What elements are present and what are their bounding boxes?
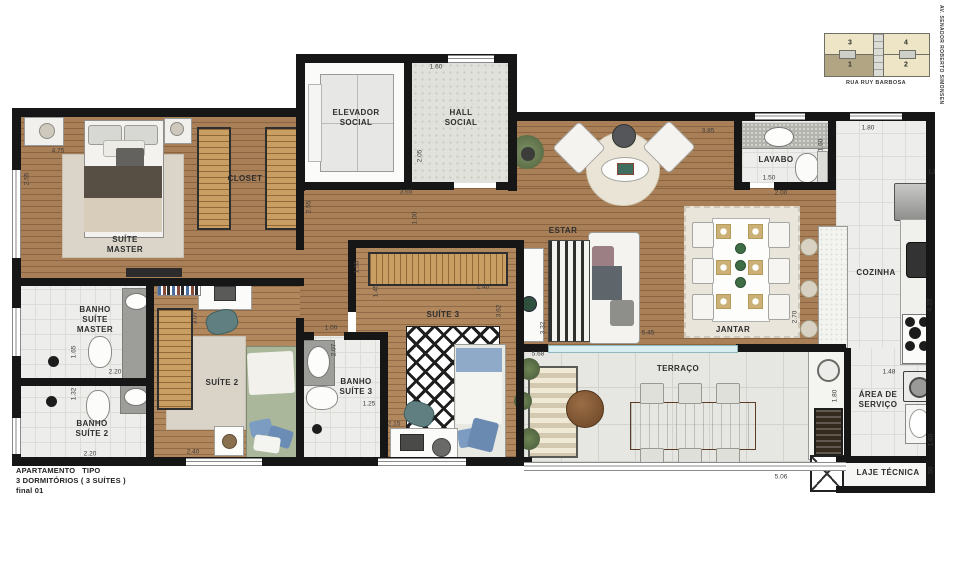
- island-stool: [800, 320, 818, 338]
- key-plan-unit4-number: 4: [904, 40, 908, 47]
- room-label-laje-t-cnica: LAJE TÉCNICA: [856, 468, 919, 478]
- key-plan-core: [873, 33, 884, 77]
- dimension-label: 1.60: [928, 434, 935, 447]
- terrace-railing: [524, 462, 846, 471]
- place-setting: [748, 260, 763, 275]
- wall-segment: [380, 332, 388, 458]
- wall-segment: [146, 286, 154, 458]
- room-label-terra-o: TERRAÇO: [657, 364, 699, 374]
- window: [850, 113, 902, 120]
- toilet: [88, 336, 112, 368]
- wall-segment: [296, 190, 304, 250]
- jantar-plant: [735, 277, 746, 288]
- room-label-closet: CLOSET: [228, 174, 263, 184]
- dimension-label: 5.68: [532, 351, 545, 358]
- dimension-label: 1.25: [363, 401, 376, 408]
- dimension-label: 2.15: [388, 421, 401, 428]
- jantar-plant: [735, 243, 746, 254]
- wall-segment: [296, 54, 305, 191]
- suite2-wardrobe: [157, 308, 193, 410]
- room-label-su-te-2: SUÍTE 2: [205, 378, 238, 388]
- dimension-label: 1.00: [325, 325, 338, 332]
- gourmet-sink: [817, 359, 840, 382]
- room-label-banho-su-te-master: BANHO SUÍTE MASTER: [77, 305, 113, 335]
- dimension-label: 5.06: [775, 474, 788, 481]
- pillow: [253, 434, 281, 453]
- window: [755, 113, 805, 120]
- suite2-blanket: [247, 351, 295, 395]
- wall-segment: [828, 112, 836, 190]
- toilet: [306, 386, 338, 410]
- shower-drain: [48, 356, 59, 367]
- dimension-label: .50: [928, 466, 935, 475]
- room-label-elevador-social: ELEVADOR SOCIAL: [332, 108, 379, 128]
- kitchen-island: [818, 226, 848, 348]
- wall-segment: [348, 246, 356, 312]
- terrace-chair: [678, 383, 702, 404]
- dimension-label: 5.45: [642, 330, 655, 337]
- dimension-label: 1.48: [883, 369, 896, 376]
- bathroom-sink: [307, 346, 330, 378]
- burner: [909, 327, 921, 339]
- sofa-pillow: [610, 300, 634, 326]
- bathroom-sink: [124, 388, 148, 406]
- title-line-1: APARTAMENTO TIPO: [16, 466, 126, 476]
- burner: [905, 317, 915, 327]
- dimension-label: 1.60: [430, 64, 443, 71]
- jantar-plant: [735, 260, 746, 271]
- wall-segment: [836, 486, 931, 493]
- key-plan-unit1-number: 1: [848, 62, 852, 69]
- floor-plan: SUÍTE MASTERCLOSETELEVADOR SOCIALHALL SO…: [0, 0, 960, 576]
- room-label-estar: ESTAR: [549, 226, 578, 236]
- dimension-label: 2.00: [775, 190, 788, 197]
- shower-drain: [46, 396, 57, 407]
- elevator-shelf: [308, 84, 322, 162]
- window: [12, 418, 21, 454]
- dimension-label: 3.32: [540, 322, 547, 335]
- wall-segment: [508, 121, 517, 191]
- dimension-label: 2.20: [109, 369, 122, 376]
- window: [448, 55, 494, 63]
- shower-drain: [312, 424, 322, 434]
- place-setting: [716, 224, 731, 239]
- window: [186, 458, 262, 466]
- wall-segment: [736, 344, 846, 352]
- terrace-chair: [640, 383, 664, 404]
- estar-stripe-rug: [548, 240, 590, 342]
- place-setting: [748, 224, 763, 239]
- bathroom-sink: [125, 293, 148, 310]
- suite3-blanket-white: [456, 372, 502, 424]
- wall-segment: [734, 112, 742, 190]
- dimension-label: 1.45: [373, 285, 380, 298]
- key-plan-unit3-number: 3: [848, 40, 852, 47]
- room-label-cozinha: COZINHA: [856, 268, 895, 278]
- lamp: [39, 123, 55, 139]
- dimension-label: 1.55: [354, 261, 361, 274]
- toilet: [86, 390, 110, 422]
- dimension-label: 3.65: [400, 189, 413, 196]
- key-plan-window-left: [839, 50, 856, 59]
- suite3-wardrobe: [368, 252, 508, 286]
- dimension-label: 1.50: [763, 175, 776, 182]
- estar-tray: [617, 163, 634, 175]
- lavabo-toilet: [795, 153, 819, 183]
- room-label-hall-social: HALL SOCIAL: [445, 108, 478, 128]
- suite3-blanket-blue: [456, 348, 502, 374]
- wall-segment: [296, 182, 412, 190]
- terrace-dining-table: [630, 402, 756, 450]
- dimension-label: 2.05: [417, 150, 424, 163]
- room-label--rea-de-servi-o: ÁREA DE SERVIÇO: [859, 390, 898, 410]
- room-label-lavabo: LAVABO: [759, 155, 794, 165]
- dimension-label: 2.40: [187, 449, 200, 456]
- dimension-label: 1.80: [832, 390, 839, 403]
- dimension-label: 2.70: [792, 311, 799, 324]
- dimension-label: LJ: [929, 169, 936, 176]
- nightstand-decor: [222, 434, 237, 449]
- jantar-chair: [768, 258, 790, 284]
- dimension-label: 2.55: [24, 173, 31, 186]
- bed-blanket-light: [84, 198, 162, 232]
- dimension-label: 1.00: [412, 212, 419, 225]
- dimension-label: 3.07: [192, 312, 199, 325]
- lavabo-basin: [764, 127, 794, 147]
- key-plan-window-right: [899, 50, 916, 59]
- dimension-label: 2.07: [331, 344, 338, 357]
- window: [378, 458, 466, 466]
- room-label-banho-su-te-3: BANHO SUÍTE 3: [339, 377, 372, 397]
- dimension-label: 4.15: [927, 299, 934, 312]
- lamp: [170, 122, 184, 136]
- window: [12, 308, 21, 356]
- sofa-throw: [592, 266, 622, 300]
- wall-segment: [12, 108, 21, 465]
- wall-segment: [12, 108, 304, 117]
- place-setting: [748, 294, 763, 309]
- wall-segment: [404, 62, 412, 183]
- key-plan-unit2-number: 2: [904, 62, 908, 69]
- room-label-su-te-master: SUÍTE MASTER: [107, 235, 143, 255]
- dimension-label: 1.32: [71, 388, 78, 401]
- room-label-jantar: JANTAR: [716, 325, 750, 335]
- terrace-round-table: [566, 390, 604, 428]
- lavabo-toilet-tank: [817, 151, 828, 183]
- room-label-banho-su-te-2: BANHO SUÍTE 2: [75, 419, 108, 439]
- laptop: [400, 434, 424, 451]
- estar-plant-pot: [521, 147, 535, 161]
- dimension-label: 2.40: [477, 284, 490, 291]
- dimension-label: 3.62: [496, 305, 503, 318]
- dimension-label: 2.20: [84, 451, 97, 458]
- title-line-2: 3 DORMITÓRIOS ( 3 SUÍTES ): [16, 476, 126, 486]
- burner: [905, 341, 915, 351]
- island-stool: [800, 238, 818, 256]
- jantar-chair: [692, 294, 714, 320]
- jantar-chair: [768, 294, 790, 320]
- jantar-chair: [692, 258, 714, 284]
- dimension-label: 1.65: [71, 346, 78, 359]
- street-label-side: AV. SENADOR ROBERTO SIMONSEN: [938, 5, 944, 105]
- place-setting: [716, 294, 731, 309]
- wall-segment: [734, 182, 750, 190]
- dimension-label: 3.85: [702, 128, 715, 135]
- dimension-label: 2.55: [306, 201, 313, 214]
- wall-segment: [12, 378, 152, 386]
- laptop: [214, 286, 236, 301]
- sliding-glass-door: [548, 345, 738, 353]
- wall-segment: [844, 348, 851, 460]
- grill: [814, 408, 843, 456]
- terrace-chair: [716, 383, 740, 404]
- bed-bench: [126, 268, 182, 277]
- wall-segment: [348, 240, 524, 248]
- island-stool: [800, 280, 818, 298]
- dimension-label: 1.60: [818, 139, 825, 152]
- floor-corridor-top: [300, 188, 516, 242]
- title-block: APARTAMENTO TIPO 3 DORMITÓRIOS ( 3 SUÍTE…: [16, 466, 126, 496]
- desk-stool: [432, 438, 451, 457]
- jantar-chair: [768, 222, 790, 248]
- estar-stool: [612, 124, 636, 148]
- bed-blanket-dark: [84, 166, 162, 198]
- closet-wardrobe: [265, 127, 299, 230]
- title-line-3: final 01: [16, 486, 126, 496]
- jantar-chair: [692, 222, 714, 248]
- dimension-label: 4.75: [52, 148, 65, 155]
- place-setting: [716, 260, 731, 275]
- dimension-label: 1.80: [862, 125, 875, 132]
- wall-segment: [12, 278, 304, 286]
- wall-segment: [300, 332, 314, 340]
- closet-wardrobe: [197, 127, 231, 230]
- street-label-bottom: RUA RUY BARBOSA: [826, 80, 926, 86]
- room-label-su-te-3: SUÍTE 3: [426, 310, 459, 320]
- window: [12, 170, 21, 258]
